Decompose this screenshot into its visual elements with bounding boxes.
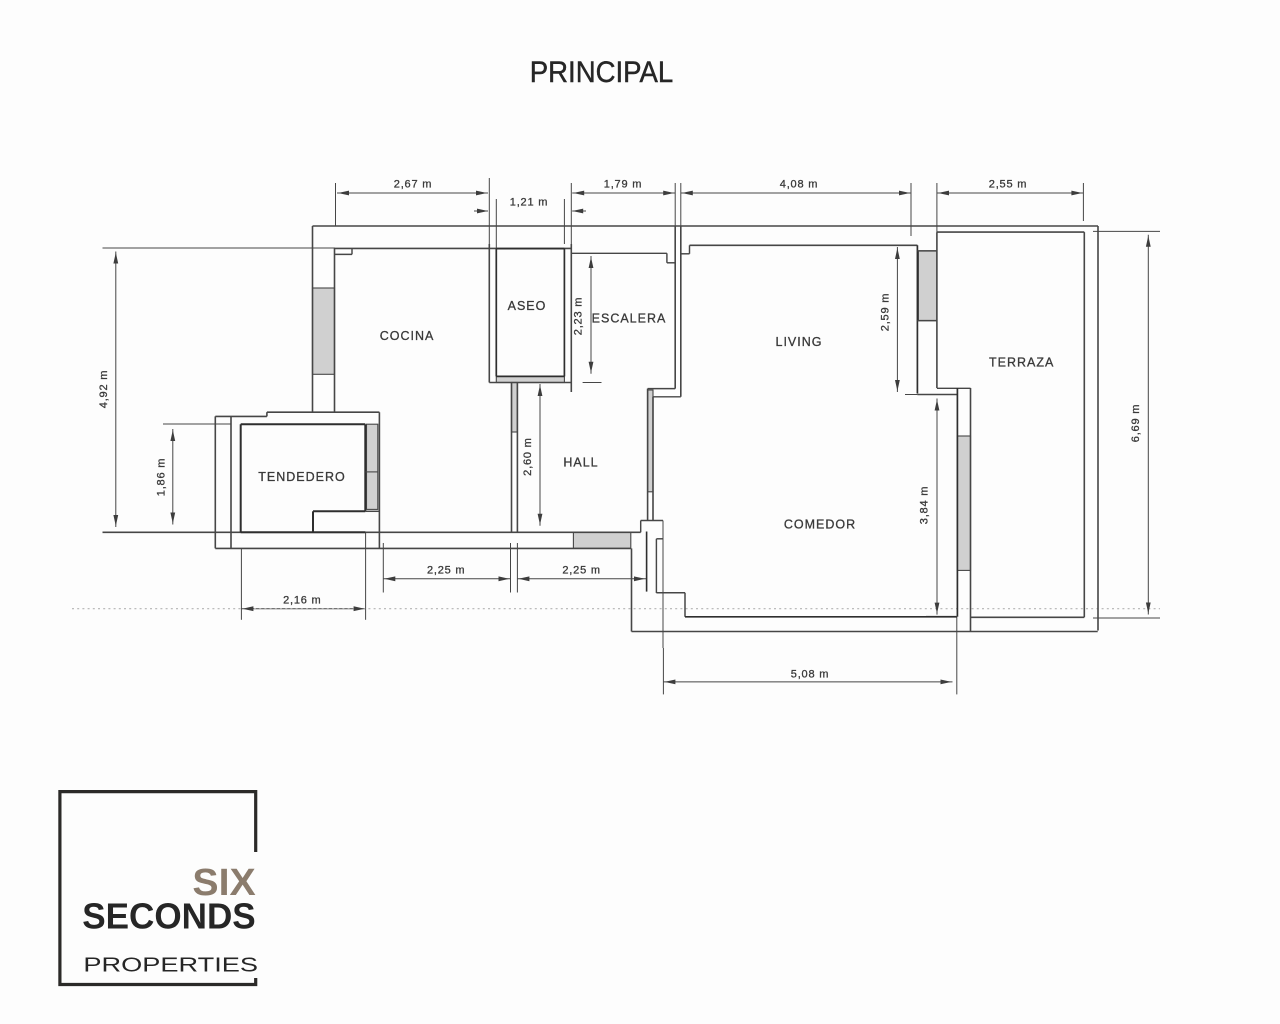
svg-text:SECONDS: SECONDS — [82, 896, 256, 937]
svg-text:2,60 m: 2,60 m — [522, 437, 534, 475]
svg-text:1,86 m: 1,86 m — [156, 458, 168, 496]
svg-text:PROPERTIES: PROPERTIES — [83, 955, 258, 977]
svg-text:2,59 m: 2,59 m — [880, 293, 892, 331]
svg-text:ASEO: ASEO — [508, 299, 547, 313]
svg-text:PRINCIPAL: PRINCIPAL — [530, 56, 674, 89]
svg-text:2,67 m: 2,67 m — [394, 179, 432, 191]
svg-text:5,08 m: 5,08 m — [791, 669, 829, 681]
svg-text:6,69 m: 6,69 m — [1130, 404, 1142, 442]
svg-text:1,21 m: 1,21 m — [510, 197, 548, 209]
svg-text:1,79 m: 1,79 m — [604, 179, 642, 191]
svg-text:TERRAZA: TERRAZA — [989, 356, 1054, 370]
svg-text:ESCALERA: ESCALERA — [592, 312, 667, 326]
svg-text:2,23 m: 2,23 m — [573, 297, 585, 335]
svg-text:2,25 m: 2,25 m — [427, 564, 465, 576]
svg-text:4,08 m: 4,08 m — [780, 179, 818, 191]
svg-text:LIVING: LIVING — [776, 335, 823, 349]
svg-text:TENDEDERO: TENDEDERO — [258, 470, 345, 484]
svg-text:2,55 m: 2,55 m — [989, 179, 1027, 191]
svg-text:COCINA: COCINA — [380, 329, 435, 343]
svg-text:COMEDOR: COMEDOR — [784, 518, 856, 532]
svg-text:2,25 m: 2,25 m — [562, 564, 600, 576]
svg-text:HALL: HALL — [563, 456, 598, 470]
svg-text:3,84 m: 3,84 m — [919, 486, 931, 524]
svg-text:4,92 m: 4,92 m — [98, 370, 110, 408]
svg-text:2,16 m: 2,16 m — [283, 594, 321, 606]
